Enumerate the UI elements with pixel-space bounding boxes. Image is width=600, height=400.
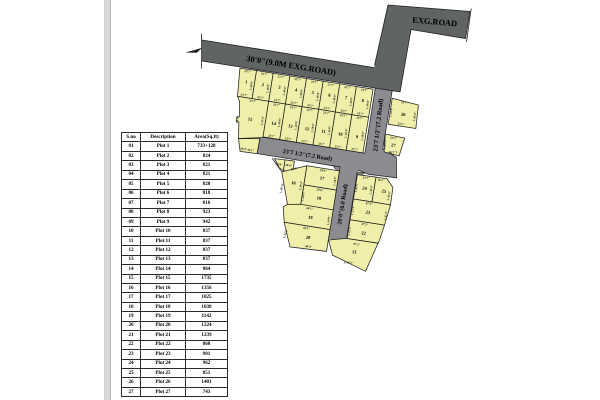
svg-text:L.21'3": L.21'3"	[383, 210, 389, 221]
svg-text:L.48'11": L.48'11"	[279, 181, 285, 193]
svg-text:18'8": 18'8"	[276, 162, 284, 167]
svg-text:L.44'1": L.44'1"	[344, 260, 354, 265]
svg-text:(40'1"): (40'1")	[388, 150, 397, 154]
